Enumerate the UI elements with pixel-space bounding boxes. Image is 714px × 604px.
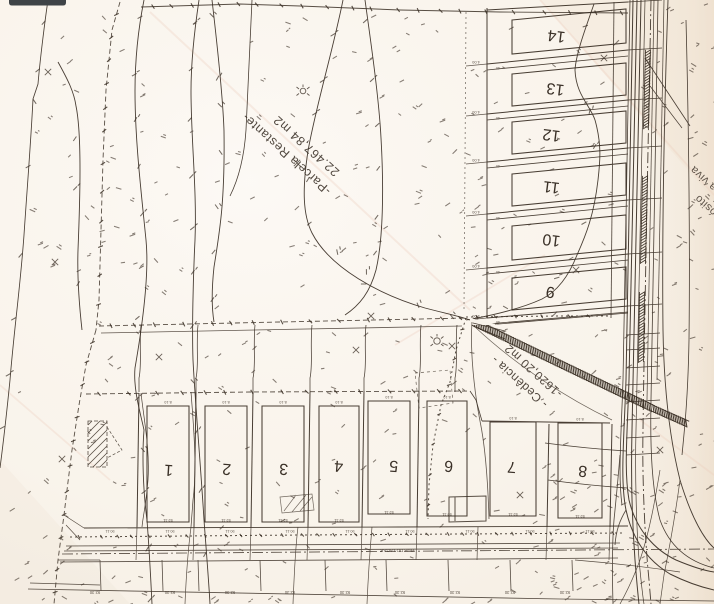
svg-text:92.30: 92.30	[559, 590, 570, 595]
svg-text:92.11: 92.11	[333, 518, 343, 523]
svg-text:6: 6	[444, 457, 454, 475]
svg-text:RUA DO LAGAR: RUA DO LAGAR	[379, 548, 414, 553]
svg-text:92.30: 92.30	[339, 590, 350, 595]
svg-text:8: 8	[578, 462, 588, 480]
svg-text:92.11: 92.11	[507, 512, 517, 517]
svg-text:90.11: 90.11	[345, 529, 354, 533]
svg-text:92.30: 92.30	[394, 590, 405, 595]
svg-text:8.10: 8.10	[335, 400, 342, 404]
svg-text:4.00: 4.00	[471, 158, 480, 163]
svg-text:92.11: 92.11	[220, 518, 230, 523]
svg-text:40: 40	[496, 216, 500, 220]
svg-text:92.11: 92.11	[162, 518, 172, 523]
svg-text:92.11: 92.11	[383, 510, 393, 515]
svg-text:1: 1	[164, 461, 174, 479]
svg-text:4.00: 4.00	[471, 210, 480, 215]
svg-text:8.10: 8.10	[385, 395, 392, 399]
svg-text:92.30: 92.30	[164, 590, 175, 595]
svg-text:92.30: 92.30	[284, 590, 295, 595]
svg-text:5: 5	[389, 457, 399, 475]
svg-text:90.11: 90.11	[165, 529, 174, 533]
svg-text:90.11: 90.11	[285, 529, 294, 533]
svg-text:8.10: 8.10	[443, 395, 450, 399]
svg-text:90.11: 90.11	[405, 529, 414, 533]
svg-text:12: 12	[541, 125, 561, 144]
svg-text:92.30: 92.30	[449, 590, 460, 595]
svg-text:90.11: 90.11	[105, 529, 114, 533]
svg-text:92.11: 92.11	[441, 512, 451, 517]
svg-text:92.30: 92.30	[224, 590, 235, 595]
svg-text:3: 3	[279, 460, 289, 478]
svg-text:10: 10	[541, 230, 561, 249]
svg-text:8.10: 8.10	[576, 417, 583, 421]
svg-text:13: 13	[545, 79, 565, 98]
svg-text:40: 40	[496, 66, 500, 70]
svg-text:14: 14	[546, 26, 566, 45]
svg-text:8.10: 8.10	[222, 400, 229, 404]
svg-text:8.10: 8.10	[279, 400, 286, 404]
svg-text:90.11: 90.11	[525, 529, 534, 533]
svg-text:7: 7	[507, 458, 517, 476]
svg-text:8.10: 8.10	[509, 416, 516, 420]
svg-text:40: 40	[496, 116, 500, 120]
svg-text:11: 11	[542, 177, 561, 196]
svg-text:8.10: 8.10	[164, 400, 171, 404]
svg-text:40: 40	[496, 164, 500, 168]
svg-text:4.00: 4.00	[471, 60, 480, 65]
svg-text:2: 2	[222, 460, 232, 478]
svg-text:90.11: 90.11	[225, 529, 234, 533]
svg-text:92.30: 92.30	[89, 590, 100, 595]
svg-text:92.11: 92.11	[574, 514, 584, 519]
svg-text:40: 40	[496, 270, 500, 274]
svg-text:90.11: 90.11	[465, 529, 474, 533]
svg-text:90.11: 90.11	[585, 529, 594, 533]
